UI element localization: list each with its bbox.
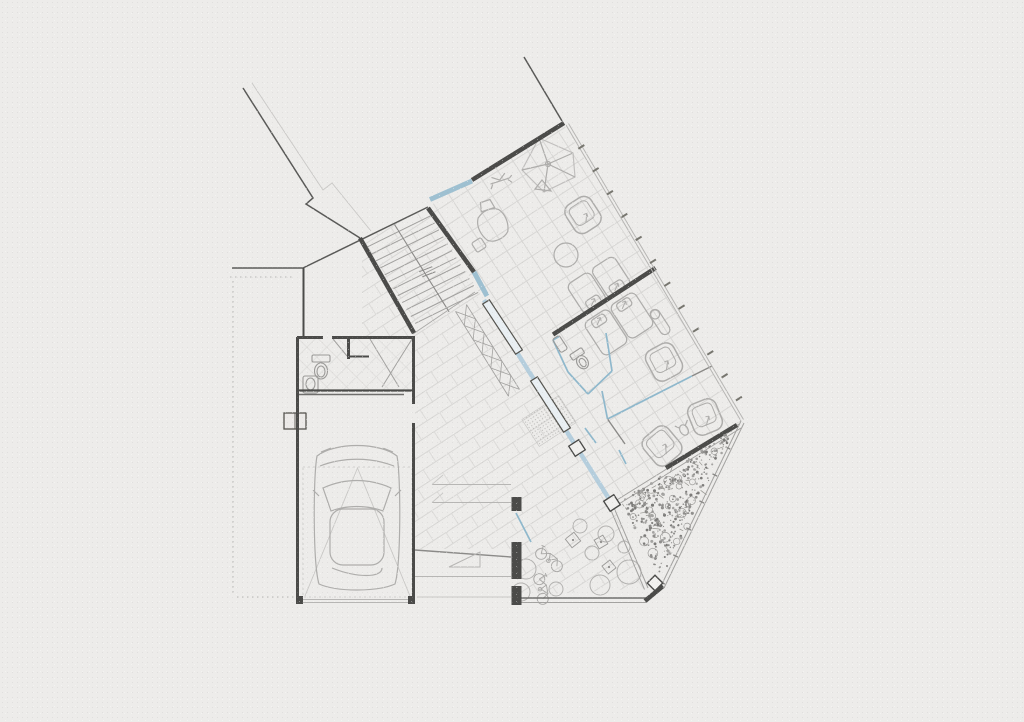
garage: [284, 413, 415, 604]
floor-plan-sheet: [0, 0, 1024, 722]
ramp-corridor-wall: [415, 550, 511, 557]
neighbour-wall-northwest: [243, 88, 360, 238]
terrace-pillar-3: [512, 586, 522, 605]
neighbour-offset-line-northwest: [252, 83, 371, 231]
terrace-pillar-1: [512, 497, 522, 511]
wall-niche: [284, 413, 306, 429]
garage-door-leaf[interactable]: [300, 600, 411, 603]
car: [313, 446, 401, 591]
neighbour-wall-northeast: [524, 57, 562, 121]
terrace-pillar-2: [512, 542, 522, 579]
ramp-guide-lines: [305, 468, 410, 596]
car-parking-guide: [303, 467, 412, 597]
floor-plan-drawing: [0, 0, 1024, 722]
